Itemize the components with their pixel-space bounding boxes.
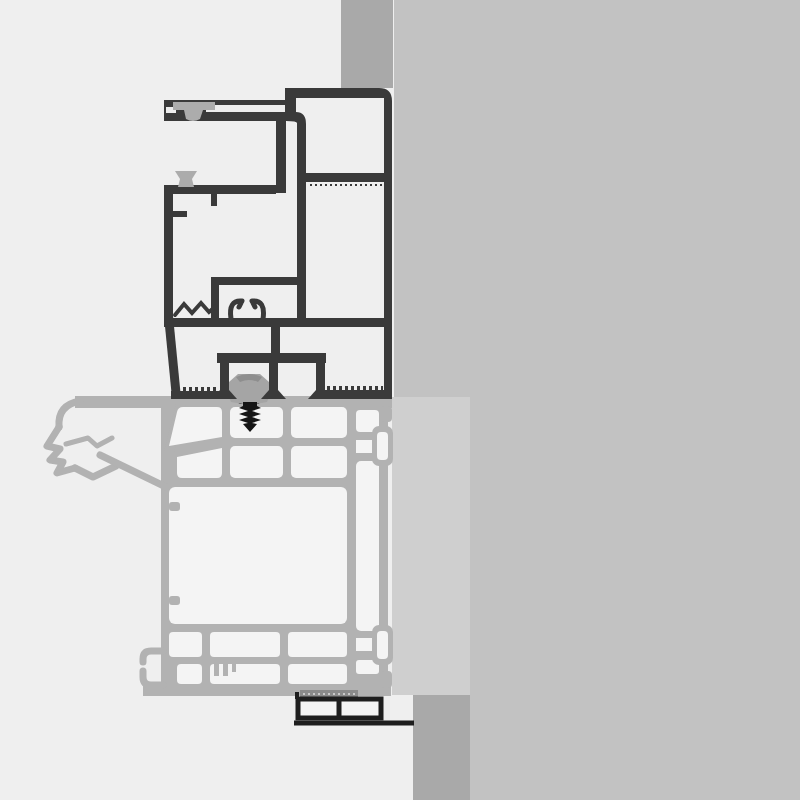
chamber-cell bbox=[230, 446, 283, 478]
retention-tab bbox=[380, 671, 392, 688]
chamber-cell bbox=[288, 632, 347, 657]
frame-chamber-divider bbox=[306, 173, 392, 182]
chamber-cell bbox=[177, 664, 202, 684]
comb-tooth bbox=[232, 664, 236, 672]
wall-tick bbox=[173, 211, 187, 217]
t-anchor-cap-slot bbox=[377, 631, 388, 659]
retention-tab bbox=[380, 406, 392, 422]
bridge-bar bbox=[217, 353, 326, 363]
cross-section-drawing bbox=[0, 0, 800, 800]
main-chamber-cell bbox=[169, 487, 347, 624]
comb-tooth bbox=[214, 664, 219, 676]
chamber-nub bbox=[169, 502, 180, 511]
chamber-cell bbox=[288, 664, 347, 684]
glazing-channel-wall bbox=[276, 112, 286, 193]
right-column-slot bbox=[356, 461, 379, 631]
bridge-leg bbox=[316, 363, 325, 391]
frame-bottom-bar bbox=[171, 391, 222, 399]
wall-reveal-edge-top bbox=[341, 0, 393, 88]
bridge-riser bbox=[271, 327, 280, 355]
chamber-cell bbox=[291, 407, 347, 438]
frame-arm-slit bbox=[206, 105, 286, 112]
chamber-cell bbox=[169, 632, 202, 657]
mounting-panel bbox=[392, 397, 470, 695]
frame-main-divider bbox=[164, 318, 392, 327]
comb-tooth bbox=[223, 664, 228, 676]
wall-tick bbox=[211, 194, 217, 206]
t-anchor-cap-slot bbox=[377, 432, 388, 460]
frame-left-wall bbox=[164, 193, 173, 319]
wall-reveal-edge-bottom bbox=[413, 695, 470, 800]
chamber-cell bbox=[210, 632, 280, 657]
chamber-cell bbox=[291, 446, 347, 478]
chamber-nub bbox=[169, 596, 180, 605]
chamber-cell bbox=[210, 664, 280, 684]
frame-bottom-bar bbox=[317, 390, 392, 399]
inner-chamber-top bbox=[211, 277, 306, 285]
technical-drawing-canvas bbox=[0, 0, 800, 800]
chamber-cell bbox=[230, 407, 283, 438]
